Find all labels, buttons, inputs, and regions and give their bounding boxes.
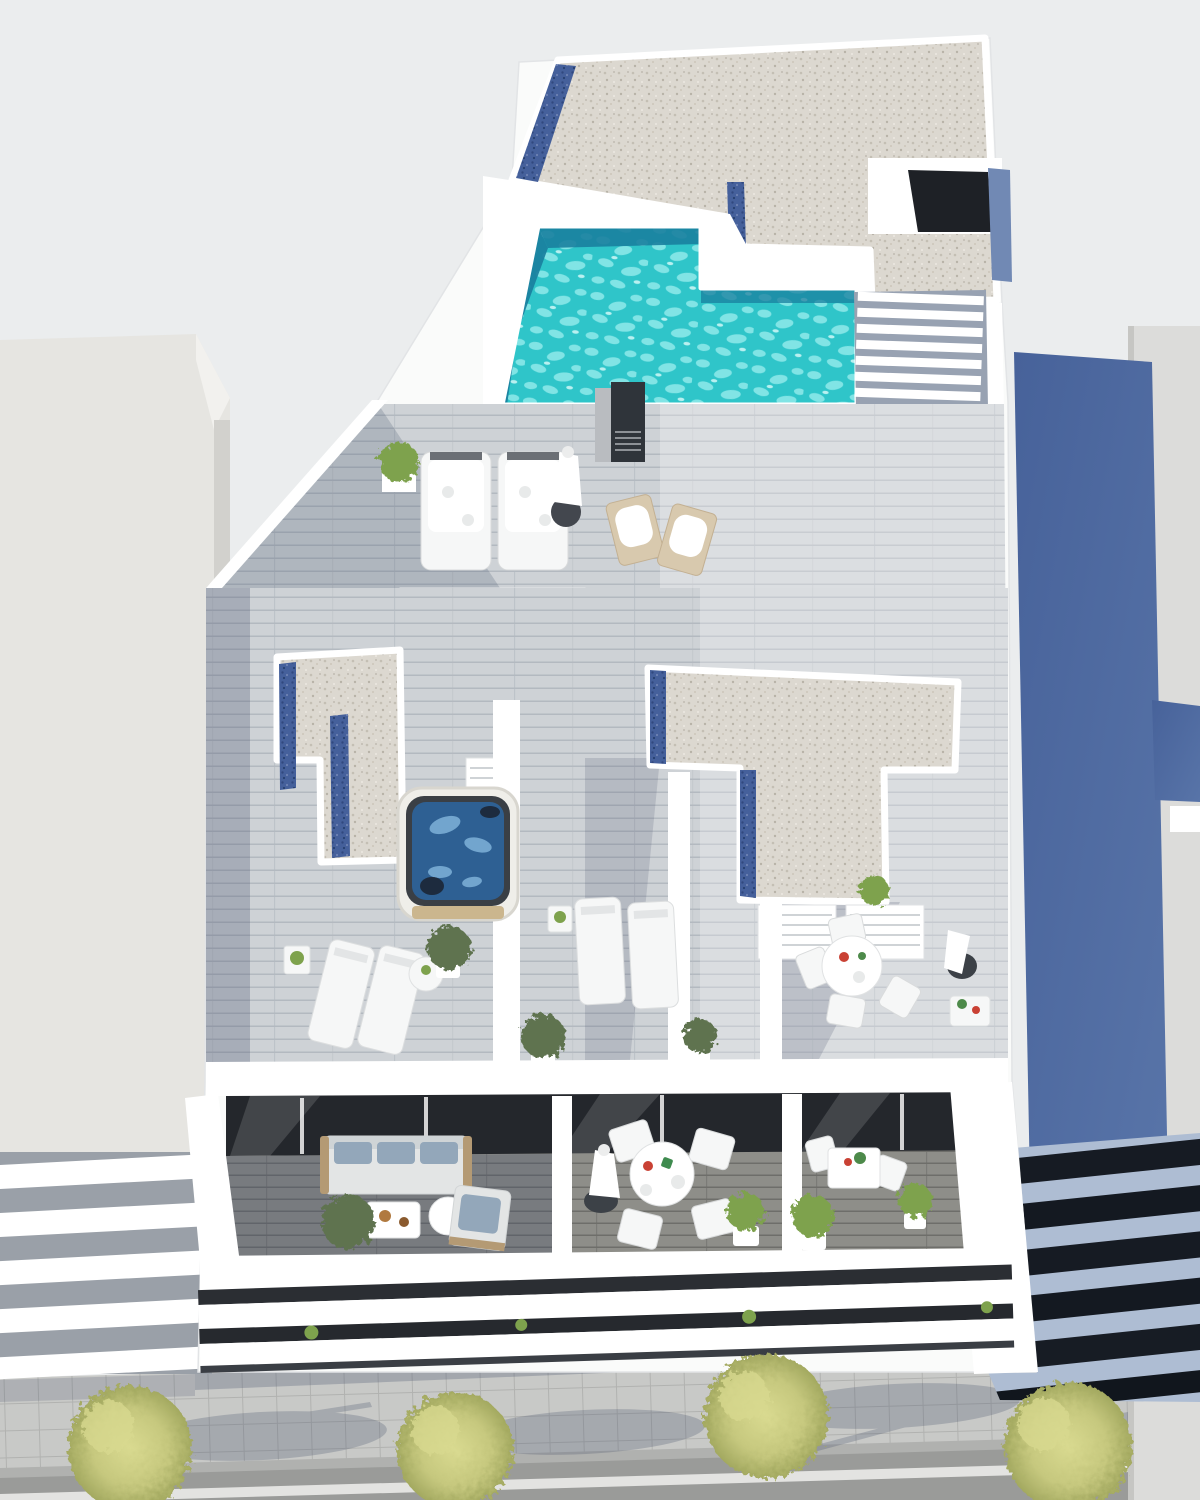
blue-pebble-strip — [330, 714, 350, 858]
tree-highlight — [82, 1400, 134, 1452]
round-dining-table — [630, 1142, 694, 1206]
jacuzzi-headrest — [480, 806, 500, 818]
rooftop-chimney — [595, 382, 645, 462]
sun-lounger-upholstered — [421, 452, 491, 570]
parasol-top — [598, 1144, 610, 1156]
armchair — [449, 1185, 512, 1251]
planter-shrub — [379, 442, 419, 482]
right-building-ledge — [1170, 806, 1200, 832]
blue-pebble-strip — [650, 670, 666, 764]
terrace-planter — [379, 442, 419, 492]
bistro-table — [828, 1148, 880, 1188]
tree — [704, 1354, 828, 1478]
side-table — [548, 906, 572, 932]
blue-pebble-strip — [740, 770, 756, 898]
shrub — [683, 1019, 717, 1053]
lounger-cushion — [428, 460, 484, 532]
rooftop-stairs — [854, 290, 988, 410]
table-plant — [421, 965, 431, 975]
round-dining-table — [822, 936, 882, 996]
sofa-arm — [320, 1136, 329, 1194]
sofa-cushion — [377, 1142, 415, 1164]
shrub — [792, 1195, 834, 1237]
shrub — [521, 1014, 565, 1058]
blue-party-wall — [1014, 352, 1168, 1186]
side-table — [950, 996, 990, 1026]
shrub — [427, 926, 471, 970]
lounger-headrest-bar — [430, 452, 482, 460]
tree-highlight — [719, 1371, 769, 1421]
side-table-top — [950, 996, 990, 1026]
sofa-cushion — [334, 1142, 372, 1164]
cushion-tuft — [519, 486, 531, 498]
lounger-cushion — [505, 460, 561, 532]
jacuzzi — [398, 788, 518, 920]
mid-level-terraces — [206, 588, 1008, 1096]
parasol-top — [562, 446, 574, 458]
blue-pebble-strip — [279, 662, 296, 790]
terrace-front-parapet — [206, 1058, 1008, 1096]
cushion-tuft — [442, 486, 454, 498]
table-item-red — [839, 952, 849, 962]
chimney-side-panel — [595, 388, 612, 462]
balcony-shrub — [321, 1195, 375, 1249]
side-table — [284, 946, 310, 974]
bulkhead-side-wall-shaded — [988, 168, 1012, 282]
architectural-render: Aerial 3D architectural rendering of a w… — [0, 0, 1200, 1500]
flat-lounger — [627, 901, 678, 1009]
cushion-tuft — [462, 514, 474, 526]
balcony-divider-wall — [552, 1096, 572, 1258]
table-plate — [671, 1175, 685, 1189]
jacuzzi-seat — [420, 877, 444, 895]
table-item-red — [643, 1161, 653, 1171]
table-item-red — [844, 1158, 852, 1166]
jacuzzi-wood-step — [412, 906, 504, 919]
sofa-cushion — [420, 1142, 458, 1164]
table-plant — [290, 951, 304, 965]
bulkhead-doorway — [908, 170, 992, 232]
shrub — [727, 1193, 765, 1231]
shrub — [859, 875, 889, 905]
sofa-arm — [463, 1136, 472, 1194]
flat-lounger — [574, 897, 625, 1005]
left-building-block — [0, 334, 230, 1152]
table-plate — [640, 1184, 652, 1196]
table-plate — [853, 971, 865, 983]
table-plant — [554, 911, 566, 923]
table-item — [399, 1217, 409, 1227]
sofa — [320, 1136, 472, 1194]
tree-highlight — [1018, 1398, 1070, 1450]
tree-highlight — [411, 1406, 459, 1454]
blue-wall-extension — [1152, 700, 1200, 802]
lounger-headrest-bar — [507, 452, 559, 460]
table-item-green — [858, 952, 866, 960]
tree-canopy — [704, 1354, 828, 1478]
table-item-green — [957, 999, 967, 1009]
cushion-tuft — [539, 514, 551, 526]
armchair-cushion — [457, 1194, 501, 1235]
table-item — [379, 1210, 391, 1222]
west-wall-shade — [206, 588, 250, 1092]
dining-chair — [826, 993, 867, 1029]
table-item-red — [972, 1006, 980, 1014]
scene-canvas: Aerial 3D architectural rendering of a w… — [0, 0, 1200, 1500]
table-item-green — [854, 1152, 866, 1164]
shrub — [898, 1183, 932, 1217]
